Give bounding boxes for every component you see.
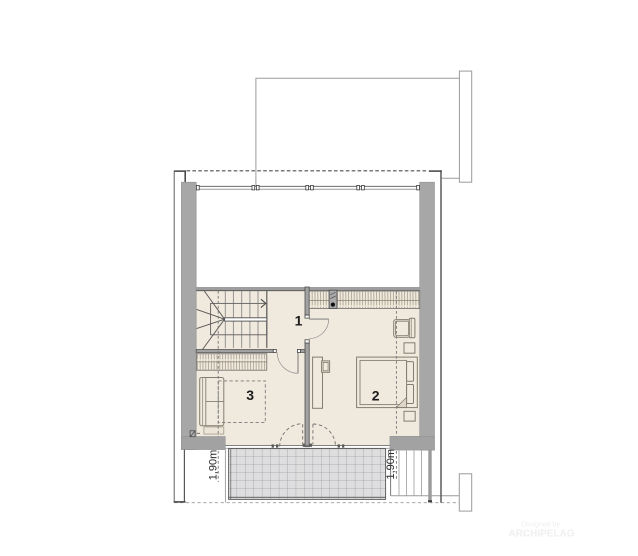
svg-text:1: 1	[295, 312, 303, 328]
svg-text:1,90m: 1,90m	[385, 449, 397, 480]
svg-text:2: 2	[372, 388, 380, 404]
svg-text:ARCHIPELAG: ARCHIPELAG	[508, 529, 574, 540]
svg-text:1,90m: 1,90m	[207, 450, 219, 481]
svg-text:Designed by: Designed by	[521, 522, 560, 529]
svg-text:3: 3	[246, 387, 254, 403]
